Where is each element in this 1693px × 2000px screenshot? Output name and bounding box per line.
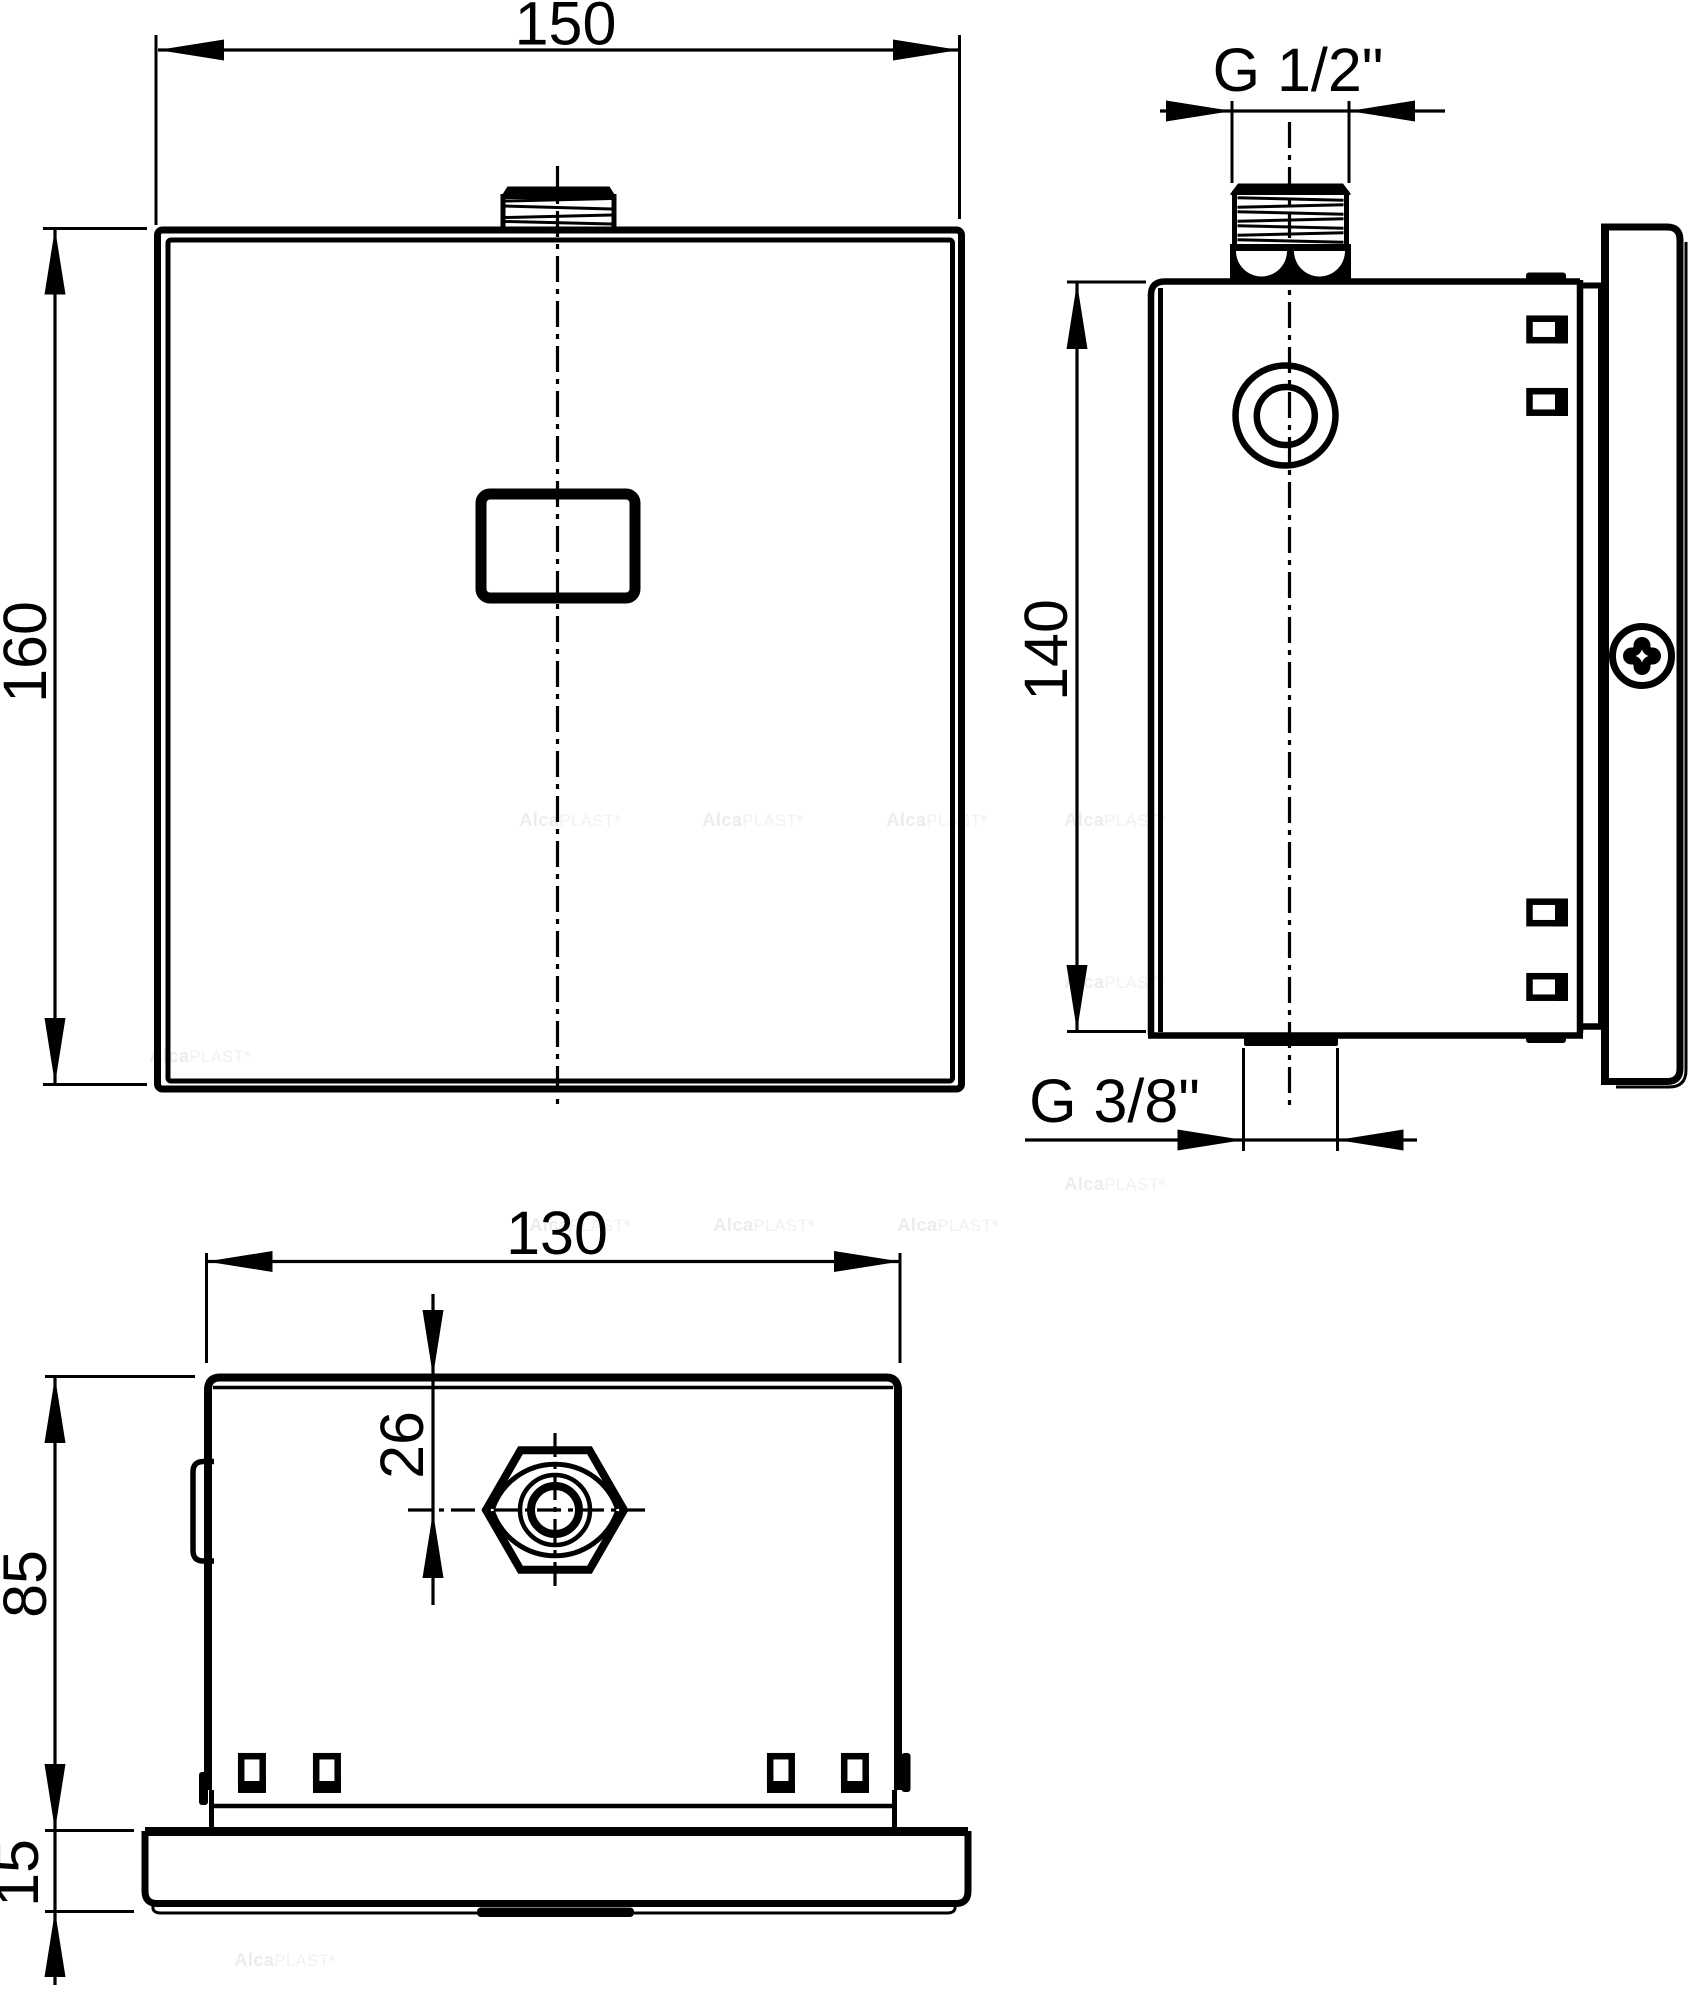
svg-text:AlcaPLAST®: AlcaPLAST®: [897, 1215, 998, 1235]
svg-text:15: 15: [0, 1839, 51, 1907]
svg-text:AlcaPLAST®: AlcaPLAST®: [234, 1950, 335, 1970]
svg-text:G 3/8": G 3/8": [1029, 1067, 1200, 1135]
svg-text:160: 160: [0, 601, 59, 703]
svg-text:AlcaPLAST®: AlcaPLAST®: [702, 810, 803, 830]
svg-text:AlcaPLAST®: AlcaPLAST®: [519, 810, 620, 830]
svg-text:140: 140: [1012, 599, 1080, 701]
svg-text:AlcaPLAST®: AlcaPLAST®: [713, 1215, 814, 1235]
svg-text:26: 26: [368, 1411, 436, 1479]
svg-text:130: 130: [506, 1199, 608, 1267]
svg-text:AlcaPLAST®: AlcaPLAST®: [886, 810, 987, 830]
svg-text:AlcaPLAST®: AlcaPLAST®: [149, 1046, 250, 1066]
svg-text:G 1/2": G 1/2": [1213, 36, 1384, 104]
svg-text:AlcaPLAST®: AlcaPLAST®: [1064, 1174, 1165, 1194]
svg-text:85: 85: [0, 1550, 59, 1618]
